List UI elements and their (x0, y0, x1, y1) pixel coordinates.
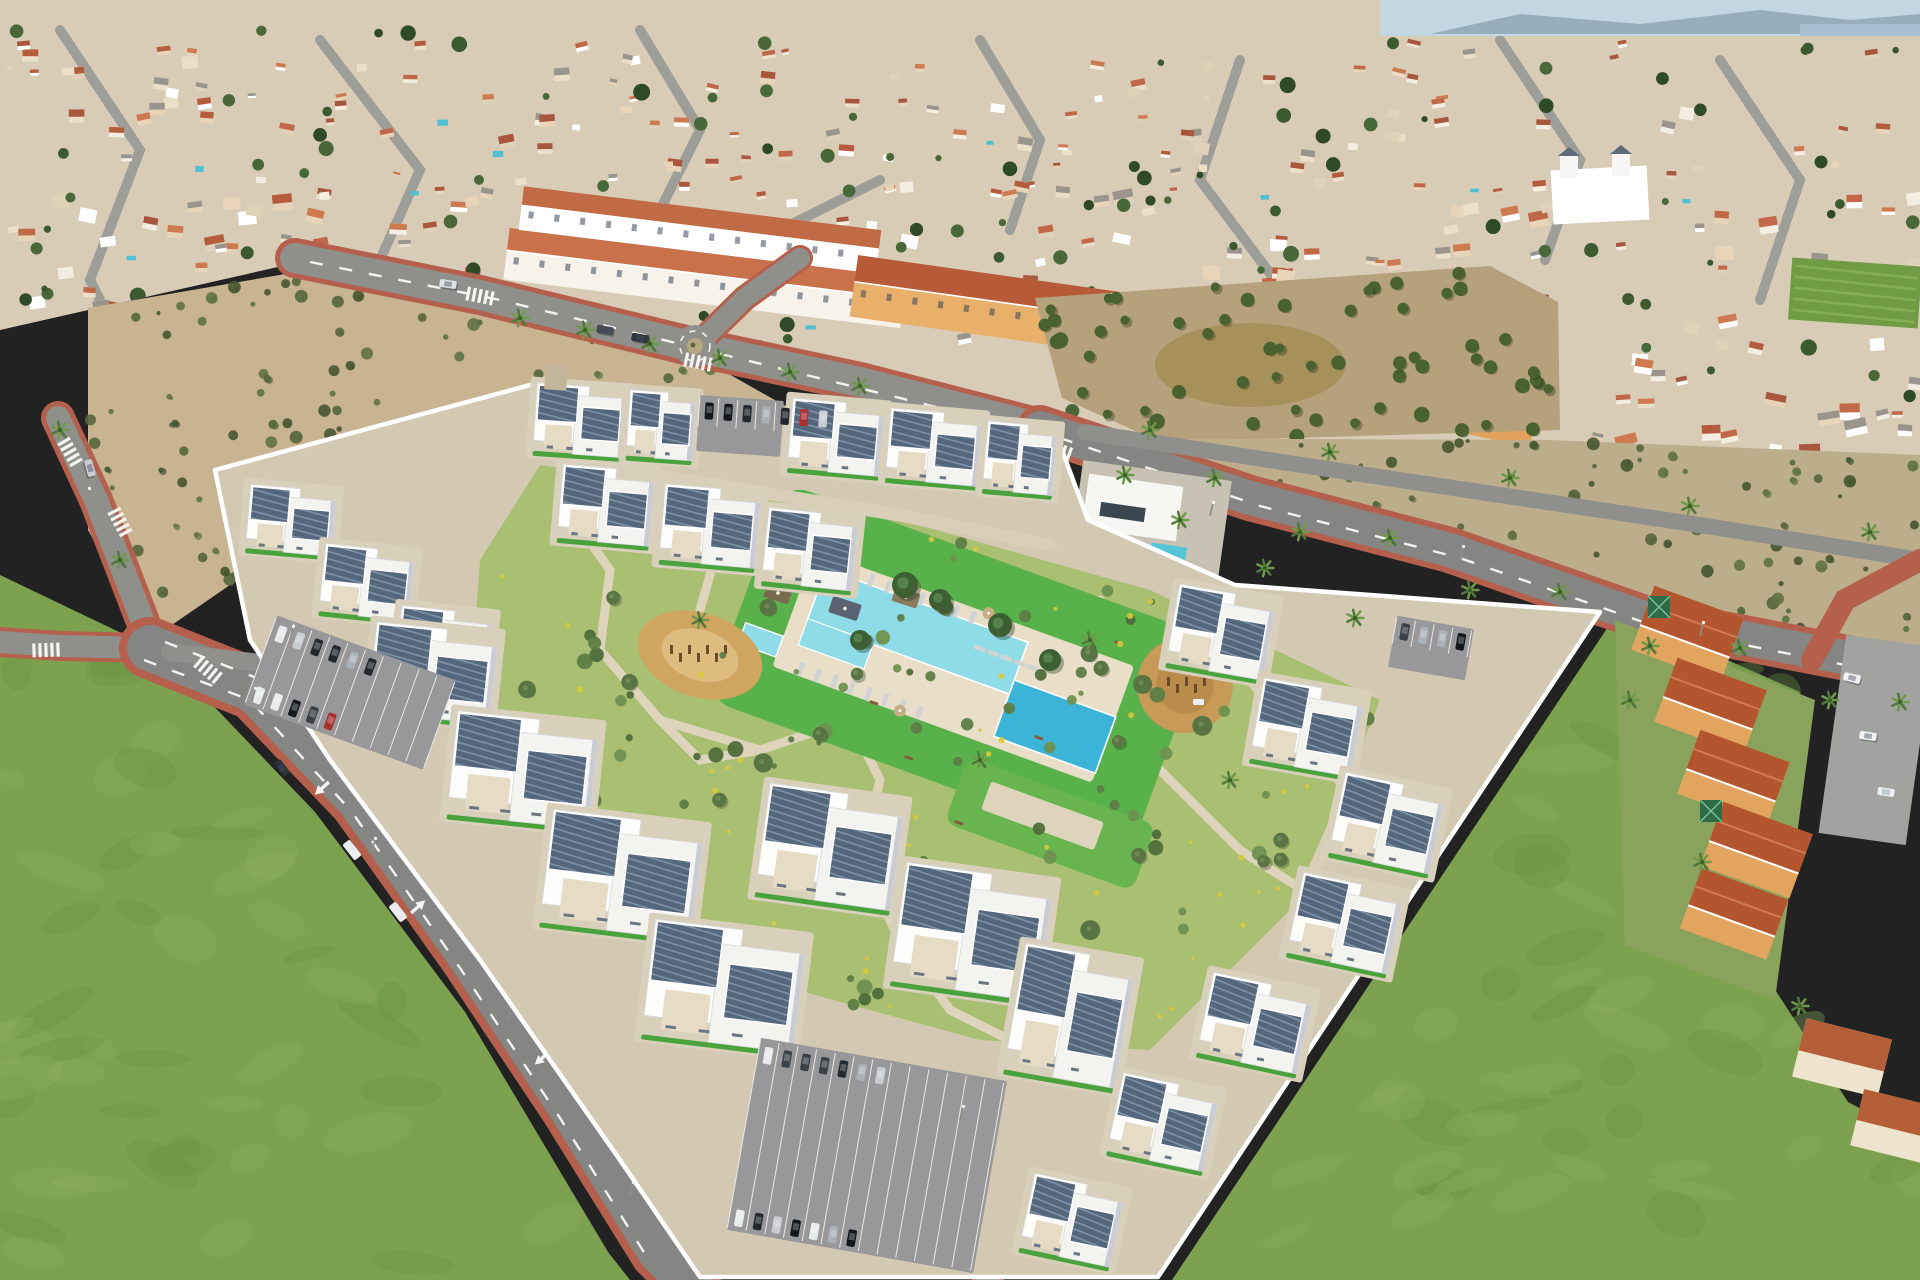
town-house (1431, 98, 1445, 109)
town-house (0, 365, 20, 381)
town-house (1375, 260, 1384, 266)
town-house (1875, 123, 1890, 134)
town-house (674, 117, 690, 127)
utility-shed (544, 365, 568, 390)
town-house (167, 225, 184, 239)
town-house (539, 114, 556, 128)
town-house (482, 94, 494, 104)
town-house (57, 266, 73, 279)
town-house (1908, 376, 1920, 390)
town-house (1055, 186, 1070, 199)
town-tree (1280, 77, 1296, 93)
town-house (1650, 370, 1665, 382)
play-structure (688, 645, 691, 654)
distant-sea (1800, 24, 1920, 36)
backyard-pool (195, 166, 203, 172)
parked-car (780, 408, 790, 426)
play-structure (679, 653, 682, 662)
town-house (1290, 162, 1305, 174)
town-house (1304, 248, 1320, 260)
town-house (786, 199, 798, 208)
town-tree (1640, 299, 1651, 310)
backyard-pool (1683, 199, 1691, 203)
town-house (465, 196, 480, 207)
town-house (915, 64, 925, 72)
town-house (83, 287, 96, 298)
town-house (275, 63, 285, 71)
town-house (1058, 144, 1068, 150)
aerial-photo-canvas (0, 0, 1920, 1280)
orchard-plot (1035, 266, 1560, 444)
town-tree (1539, 98, 1554, 113)
town-tree (1257, 266, 1265, 274)
town-tree (10, 24, 24, 38)
town-house (1094, 95, 1102, 102)
town-house (1453, 243, 1471, 257)
town-house (181, 55, 198, 69)
town-house (1463, 49, 1476, 60)
play-structure (1176, 684, 1179, 693)
town-tree (1326, 157, 1341, 172)
town-tree (1662, 198, 1669, 205)
town-house (272, 193, 293, 211)
town-house (1093, 195, 1109, 208)
town-tree (1903, 390, 1915, 402)
town-tree (994, 252, 1005, 263)
play-structure (1194, 684, 1197, 693)
town-house (195, 262, 207, 272)
apartment-cluster (525, 376, 634, 465)
town-house (1332, 172, 1345, 182)
town-house (187, 201, 203, 213)
backyard-pool (1470, 189, 1478, 193)
play-structure (715, 653, 718, 662)
sky-horizon (1380, 0, 1920, 36)
town-tree (849, 113, 857, 121)
town-house (1715, 246, 1734, 261)
town-tree (1815, 155, 1828, 168)
town-house (225, 243, 238, 254)
town-tree (1801, 45, 1811, 55)
backyard-pool (127, 256, 136, 260)
town-tree (708, 93, 718, 103)
town-tree (1422, 116, 1428, 122)
town-house (414, 40, 426, 50)
town-tree (1197, 172, 1204, 179)
town-house (357, 64, 367, 72)
play-cart (1193, 699, 1204, 705)
palm-tree (1462, 582, 1478, 598)
town-tree (1364, 118, 1378, 132)
town-tree (1117, 199, 1130, 212)
town-tree (1835, 199, 1845, 209)
town-house (705, 159, 718, 168)
palm-tree (1792, 998, 1808, 1014)
town-house (1616, 242, 1626, 250)
town-tree (1053, 250, 1067, 264)
town-house (1387, 259, 1402, 271)
town-house (1169, 187, 1177, 194)
town-tree (1827, 210, 1836, 219)
play-structure (1167, 677, 1170, 686)
town-tree (1164, 196, 1172, 204)
town-house (319, 191, 330, 199)
town-tree (31, 242, 43, 254)
town-house (1016, 136, 1033, 152)
apartment-cluster (754, 501, 867, 599)
apartment-cluster (878, 402, 991, 495)
town-house (1354, 65, 1366, 72)
town-tree (843, 184, 856, 197)
town-house (389, 223, 407, 235)
town-tree (1539, 245, 1551, 257)
town-tree (1801, 339, 1817, 355)
town-tree (758, 36, 772, 50)
town-tree (543, 93, 550, 100)
town-house (622, 54, 633, 65)
town-house (845, 99, 860, 108)
town-house (1202, 265, 1220, 280)
town-house (1263, 75, 1275, 84)
town-tree (400, 25, 415, 40)
town-house (679, 182, 690, 191)
town-house (1203, 62, 1213, 72)
town-tree (322, 107, 332, 117)
town-tree (1486, 219, 1501, 234)
town-house (1128, 88, 1140, 97)
town-house (760, 71, 776, 85)
town-house (197, 97, 212, 110)
town-house (69, 109, 85, 122)
town-tree (44, 225, 51, 232)
town-tree (1540, 62, 1553, 75)
backyard-pool (806, 325, 816, 329)
play-structure (697, 653, 700, 662)
town-house (256, 177, 266, 184)
town-tree (474, 175, 484, 185)
apartment-cluster (634, 912, 815, 1061)
parked-car (818, 410, 828, 428)
parked-car (742, 405, 752, 423)
play-structure (670, 645, 673, 654)
town-tree (1707, 366, 1715, 374)
town-house (620, 106, 633, 113)
town-house (1702, 425, 1721, 441)
town-house (1065, 111, 1078, 120)
town-house (1846, 195, 1862, 209)
town-tree (1084, 200, 1094, 210)
town-house (756, 191, 766, 200)
apartment-cluster (975, 414, 1066, 503)
town-house (1897, 424, 1912, 437)
town-tree (762, 143, 773, 154)
town-tree (1622, 293, 1634, 305)
tower-green-roof (1648, 596, 1670, 618)
town-house (186, 48, 197, 57)
town-house (26, 395, 39, 403)
town-house (1666, 171, 1676, 179)
town-house (1794, 146, 1805, 156)
town-house (1679, 106, 1695, 120)
town-tree (241, 246, 254, 259)
town-house (572, 124, 580, 130)
town-house (608, 174, 618, 182)
town-tree (1145, 195, 1155, 205)
town-house (1714, 211, 1729, 225)
town-house (18, 229, 35, 242)
town-tree (886, 153, 894, 161)
town-house (1882, 207, 1895, 215)
town-tree (1003, 162, 1018, 177)
town-house (838, 144, 854, 157)
parked-car (723, 404, 733, 422)
town-house (1038, 225, 1055, 240)
town-house (22, 49, 38, 62)
town-house (1138, 115, 1148, 122)
backyard-pool (986, 141, 993, 145)
town-tree (1129, 161, 1140, 172)
town-tree (299, 168, 309, 178)
palm-tree (1822, 692, 1838, 708)
town-tree (999, 219, 1006, 226)
town-house (223, 197, 241, 210)
town-house (1435, 247, 1451, 260)
parked-car (799, 409, 809, 427)
town-tree (1892, 47, 1899, 54)
aerial-photo (0, 0, 1920, 1280)
backyard-pool (411, 191, 419, 195)
town-house (1536, 119, 1550, 129)
town-house (1634, 358, 1654, 375)
town-tree (1869, 370, 1880, 381)
town-tree (70, 391, 86, 407)
town-house (62, 67, 75, 76)
tower-green-roof (1700, 800, 1722, 822)
town-house (1161, 150, 1171, 157)
town-house (664, 161, 673, 167)
town-house (121, 154, 132, 161)
town-tree (694, 117, 708, 131)
town-house (1180, 129, 1194, 141)
town-house (1532, 180, 1546, 192)
town-tree (223, 94, 235, 106)
town-tree (951, 224, 964, 237)
town-house (953, 129, 967, 139)
town-tree (935, 155, 941, 161)
town-tree (256, 26, 266, 36)
town-tree (319, 141, 334, 156)
town-house (898, 98, 907, 106)
town-tree (313, 128, 327, 142)
town-tree (1656, 72, 1669, 85)
backyard-pool (437, 120, 448, 126)
town-house (899, 181, 913, 193)
town-house (109, 127, 125, 138)
town-tree (1270, 205, 1281, 216)
parked-car (704, 402, 714, 420)
town-tree (1387, 37, 1399, 49)
town-house (215, 243, 227, 253)
palm-tree (1257, 560, 1273, 576)
town-house (157, 46, 172, 56)
town-house (1839, 403, 1859, 420)
apartment-cluster (747, 776, 913, 920)
town-house (17, 40, 31, 50)
town-house (326, 118, 335, 126)
town-tree (58, 148, 69, 159)
town-house (650, 120, 660, 129)
town-tree (1707, 260, 1713, 266)
town-house (778, 151, 792, 162)
town-tree (1158, 59, 1165, 66)
town-house (515, 178, 527, 185)
town-house (398, 240, 411, 248)
town-house (403, 75, 417, 83)
apartment-cluster (651, 477, 768, 576)
town-house (153, 77, 169, 91)
town-tree (252, 159, 264, 171)
town-tree (597, 180, 609, 192)
town-house (537, 143, 552, 154)
town-tree (821, 149, 835, 163)
play-structure (1203, 677, 1206, 686)
town-house (554, 67, 570, 81)
town-tree (451, 36, 467, 52)
town-house (836, 216, 849, 226)
town-house (76, 388, 88, 397)
town-house (1616, 394, 1631, 404)
town-house (435, 187, 445, 195)
town-house (149, 103, 165, 115)
town-tree (780, 317, 795, 332)
town-house (1348, 143, 1358, 151)
town-house (1758, 216, 1779, 235)
town-tree (1584, 243, 1598, 257)
town-house (200, 111, 214, 124)
town-tree (65, 192, 75, 202)
town-tree (1229, 242, 1237, 250)
town-tree (1694, 104, 1706, 116)
town-tree (910, 223, 923, 236)
town-tree (374, 29, 383, 38)
town-tree (783, 334, 793, 344)
town-house (335, 100, 347, 110)
town-tree (1316, 129, 1331, 144)
parked-car (761, 406, 771, 424)
town-tree (760, 84, 773, 97)
town-house (1718, 265, 1727, 273)
town-house (423, 221, 438, 233)
play-structure (706, 645, 709, 654)
town-house (741, 155, 751, 162)
town-house (1414, 183, 1426, 191)
town-house (30, 69, 39, 75)
town-house (1199, 165, 1207, 172)
town-house (1638, 398, 1655, 408)
town-house (15, 394, 35, 406)
town-house (1053, 162, 1060, 168)
town-house (1695, 223, 1705, 232)
town-house (1313, 178, 1326, 189)
town-house (730, 132, 739, 138)
town-tree (41, 286, 47, 292)
town-house (1892, 411, 1903, 418)
town-tree (1906, 215, 1920, 229)
town-house (248, 93, 256, 98)
town-tree (633, 84, 650, 101)
play-structure (1185, 677, 1188, 686)
apartment-cluster (618, 383, 703, 468)
town-tree (1276, 108, 1291, 123)
town-tree (1137, 171, 1152, 186)
backyard-pool (1261, 195, 1269, 200)
town-tree (19, 293, 32, 306)
town-house (1300, 149, 1316, 162)
apartment-cluster (549, 458, 662, 555)
town-tree (1641, 343, 1651, 353)
town-house (450, 201, 467, 212)
town-house (16, 346, 33, 360)
town-house (1869, 338, 1884, 351)
backyard-pool (493, 151, 503, 157)
apartment-cluster (780, 392, 893, 485)
town-tree (896, 242, 907, 253)
town-house (990, 103, 1005, 113)
town-tree (1283, 246, 1299, 262)
town-house (142, 216, 158, 231)
town-tree (444, 215, 458, 229)
